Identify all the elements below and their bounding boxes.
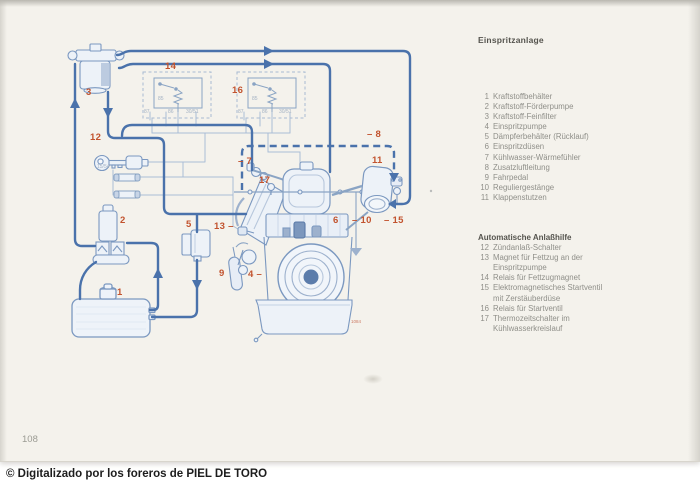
legend-subtitle: Automatische Anlaßhilfe bbox=[478, 233, 693, 243]
part-label: 1084 bbox=[351, 317, 361, 326]
fuel-pump bbox=[93, 205, 129, 264]
part-label: 16 bbox=[232, 86, 243, 95]
injectors bbox=[294, 222, 305, 238]
legend-item: 16 Relais für Startventil bbox=[478, 304, 693, 314]
part-label: 11 bbox=[372, 156, 383, 165]
pull-magnet bbox=[238, 227, 247, 235]
watermark-text: © Digitalizado por los foreros de PIEL D… bbox=[6, 468, 267, 480]
terminal-label: 15/54 bbox=[97, 165, 110, 170]
legend-list-injection: 1 Kraftstoffbehälter 2 Kraftstoff-Förder… bbox=[478, 92, 693, 203]
terminal-label: 87 bbox=[238, 110, 244, 115]
relay-14 bbox=[143, 72, 211, 118]
scan-smudge bbox=[363, 374, 383, 384]
part-label: 2 bbox=[120, 216, 126, 225]
legend-item: 3 Kraftstoff-Feinfilter bbox=[478, 112, 693, 122]
part-label: 17 bbox=[259, 176, 270, 185]
legend-item: 15 Elektromagnetisches Startventil mit Z… bbox=[478, 283, 693, 303]
terminal-label: 85 bbox=[158, 97, 164, 102]
terminal-label: 30/51 bbox=[186, 110, 199, 115]
legend-item: 10 Reguliergestänge bbox=[478, 183, 693, 193]
legend-item: 12 Zündanlaß-Schalter bbox=[478, 243, 693, 253]
relay-16 bbox=[237, 72, 305, 118]
part-label: – 8 bbox=[367, 130, 381, 139]
legend: Einspritzanlage 1 Kraftstoffbehälter 2 K… bbox=[478, 36, 693, 334]
engine bbox=[234, 162, 402, 342]
part-label: 4 – bbox=[248, 270, 262, 279]
damper-container bbox=[182, 230, 210, 261]
legend-item: 5 Dämpferbehälter (Rücklauf) bbox=[478, 132, 693, 142]
legend-item: 14 Relais für Fettzugmagnet bbox=[478, 273, 693, 283]
legend-title: Einspritzanlage bbox=[478, 36, 693, 45]
legend-list-start-aid: 12 Zündanlaß-Schalter 13 Magnet für Fett… bbox=[478, 243, 693, 334]
terminal-label: 30/51 bbox=[279, 110, 292, 115]
part-label: – 7 bbox=[238, 157, 252, 166]
legend-item: 8 Zusatzluftleitung bbox=[478, 163, 693, 173]
legend-item: 9 Fahrpedal bbox=[478, 173, 693, 183]
part-label: 9 bbox=[219, 269, 225, 278]
legend-item: 13 Magnet für Fettzug an der Einspritzpu… bbox=[478, 253, 693, 273]
legend-item: 4 Einspritzpumpe bbox=[478, 122, 693, 132]
part-label: 1 bbox=[117, 288, 123, 297]
part-label: 12 bbox=[90, 133, 101, 142]
part-label: 5 bbox=[186, 220, 192, 229]
terminal-label: 87 bbox=[144, 110, 150, 115]
legend-item: 17 Thermozeitschalter im Kühlwasserkreis… bbox=[478, 314, 693, 334]
legend-item: 6 Einspritzdüsen bbox=[478, 142, 693, 152]
legend-item: 11 Klappenstutzen bbox=[478, 193, 693, 203]
part-label: 14 bbox=[165, 62, 176, 71]
page-number: 108 bbox=[22, 434, 38, 445]
part-label: 3 bbox=[86, 88, 92, 97]
legend-item: 7 Kühlwasser-Wärmefühler bbox=[478, 153, 693, 163]
legend-item: 1 Kraftstoffbehälter bbox=[478, 92, 693, 102]
fuel-filter bbox=[68, 44, 124, 93]
terminal-label: 86 bbox=[168, 110, 174, 115]
part-label: – 15 bbox=[384, 216, 404, 225]
scan-speck bbox=[430, 190, 432, 192]
terminal-label: 86 bbox=[262, 110, 268, 115]
fuses bbox=[114, 174, 140, 198]
part-label: 13 – bbox=[214, 222, 234, 231]
part-label: – 10 bbox=[352, 216, 372, 225]
part-label: 6 bbox=[333, 216, 339, 225]
legend-item: 2 Kraftstoff-Förderpumpe bbox=[478, 102, 693, 112]
fuel-tank bbox=[72, 284, 155, 337]
scanned-manual-page: 3 14 16 12 2 5 1 13 – 9 4 – – 7 17 – 8 1… bbox=[0, 0, 700, 497]
terminal-label: 85 bbox=[252, 97, 258, 102]
